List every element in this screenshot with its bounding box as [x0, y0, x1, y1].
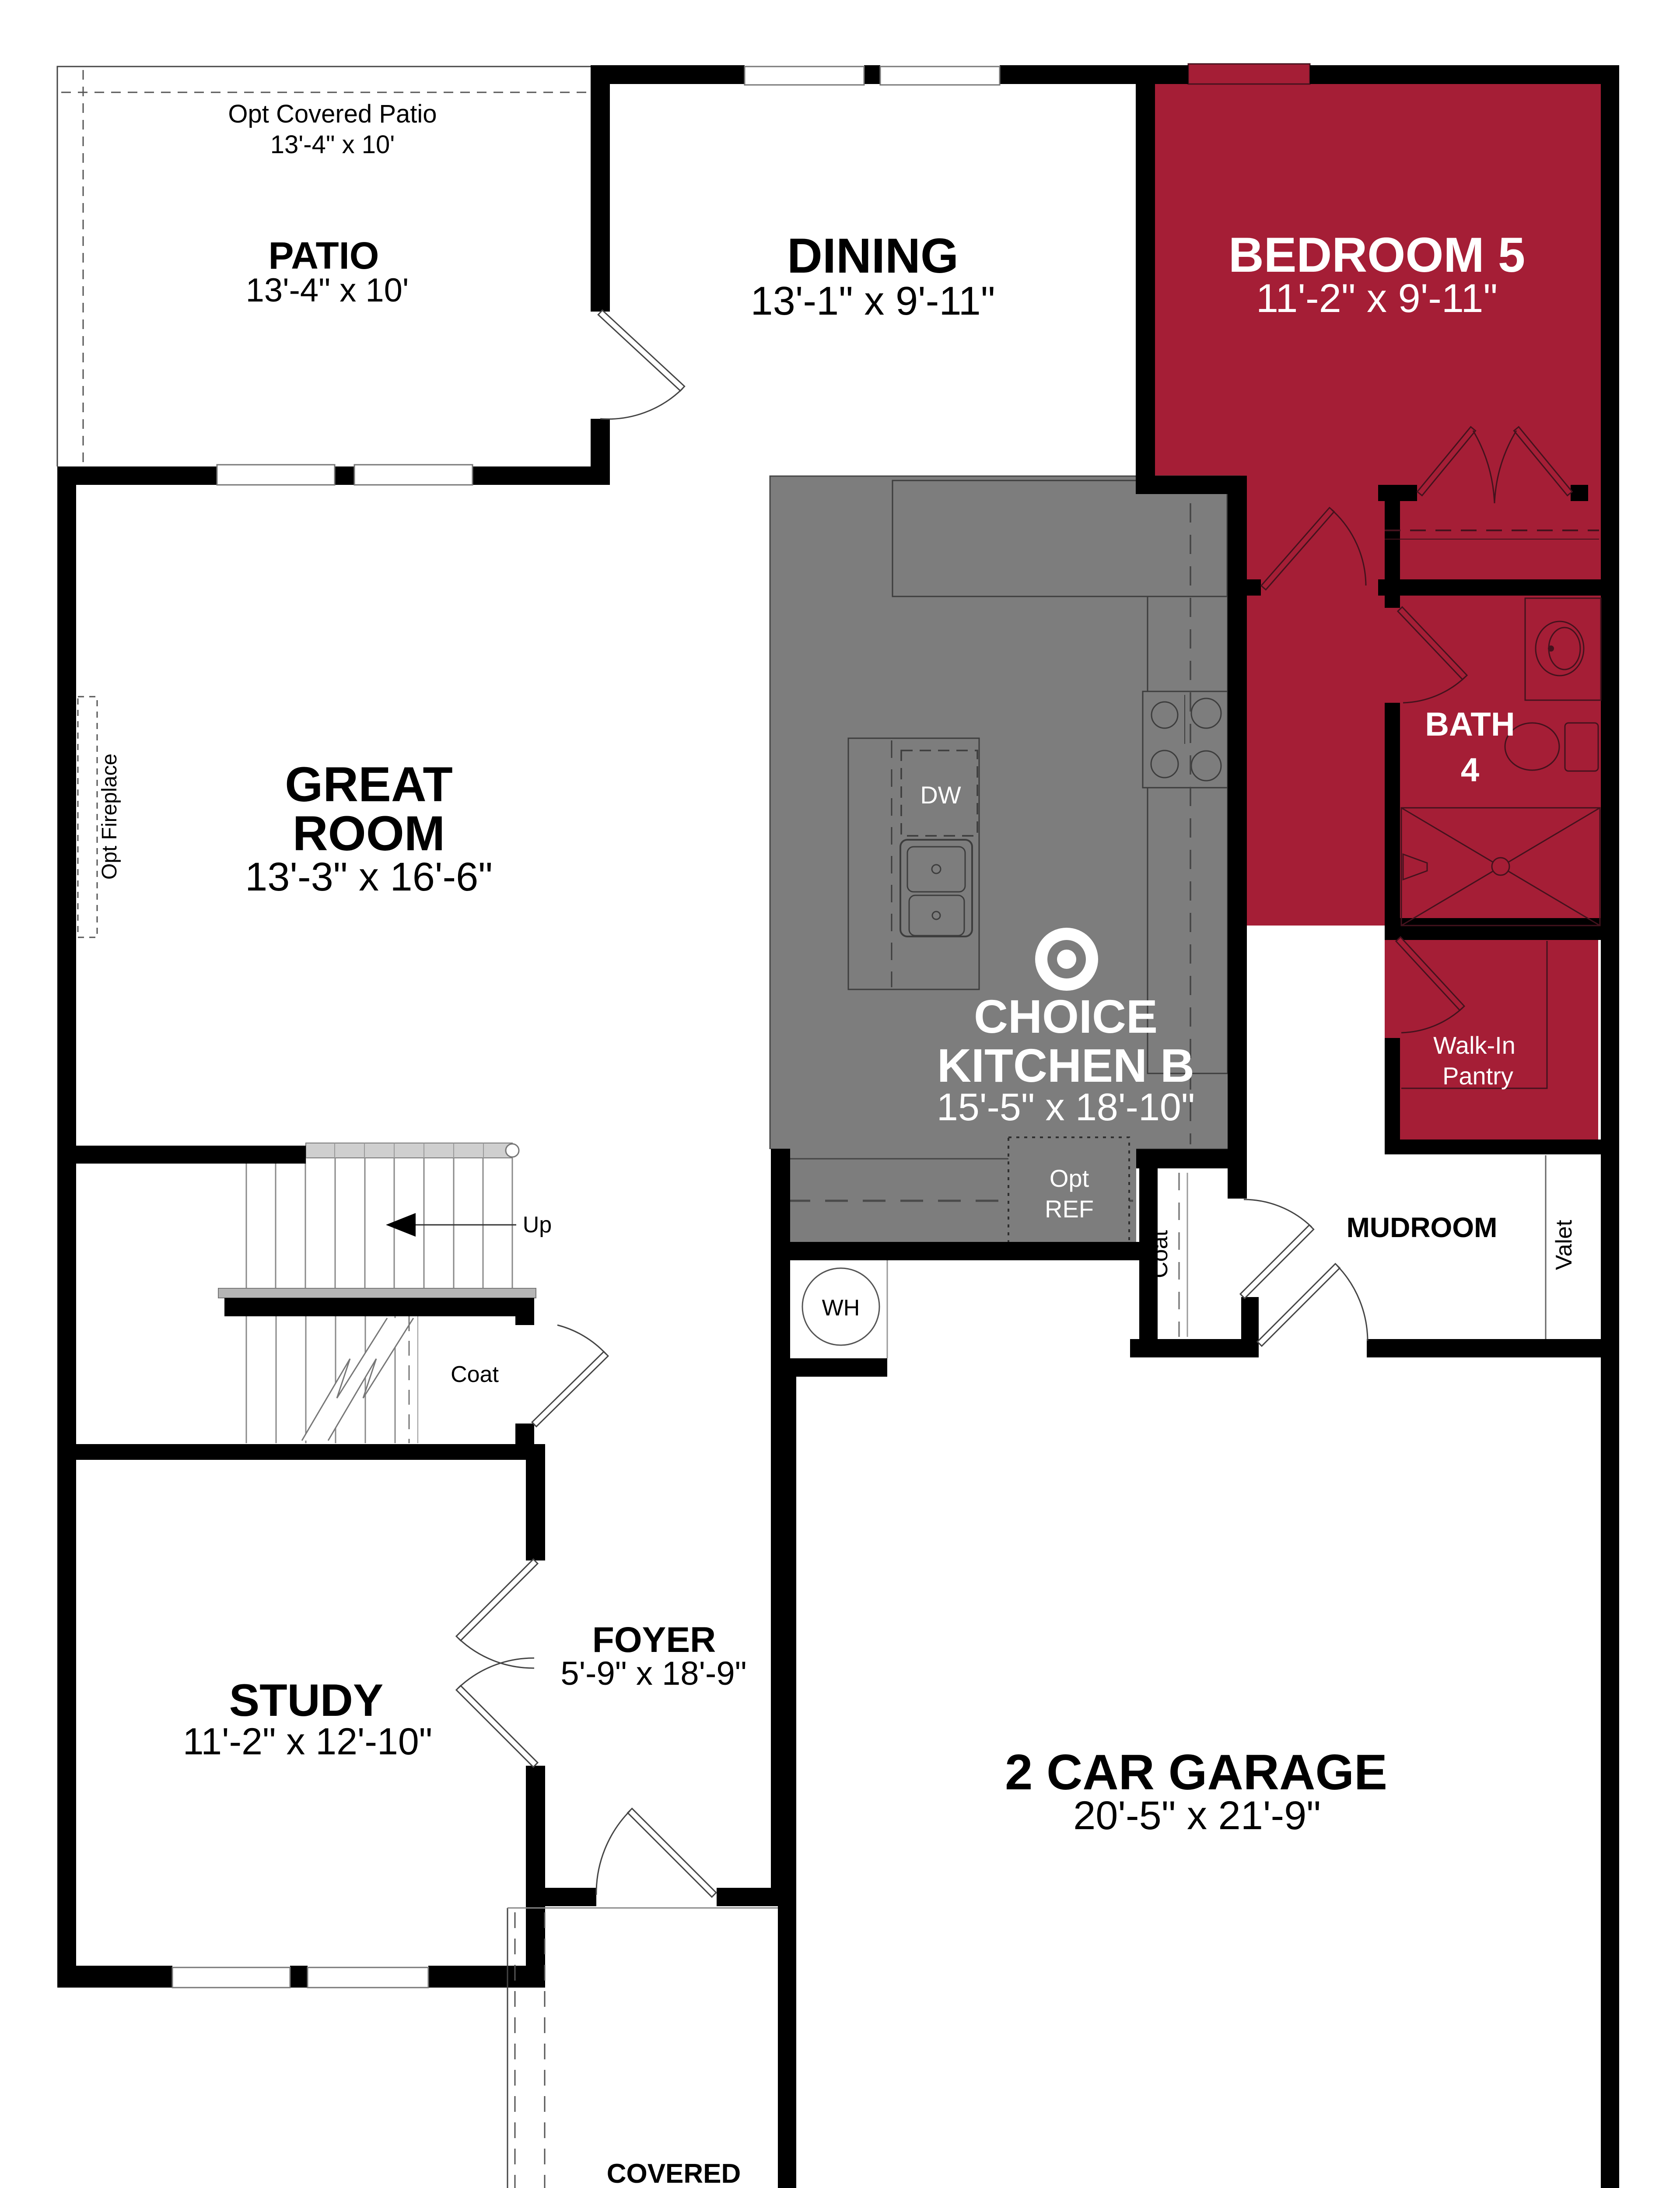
svg-text:REF: REF [1045, 1195, 1094, 1223]
svg-text:Coat: Coat [1147, 1230, 1172, 1278]
svg-text:13'-4" x 10': 13'-4" x 10' [270, 130, 395, 159]
svg-text:KITCHEN B: KITCHEN B [937, 1039, 1194, 1092]
svg-text:Pantry: Pantry [1442, 1062, 1513, 1090]
svg-text:BATH: BATH [1425, 706, 1515, 743]
svg-text:11'-2" x 9'-11": 11'-2" x 9'-11" [1256, 276, 1498, 321]
svg-text:2 CAR GARAGE: 2 CAR GARAGE [1005, 1745, 1387, 1800]
svg-text:4: 4 [1461, 751, 1479, 789]
svg-text:ROOM: ROOM [293, 806, 445, 861]
svg-text:Valet: Valet [1551, 1220, 1577, 1270]
svg-text:DINING: DINING [787, 228, 959, 283]
svg-text:Coat: Coat [451, 1362, 499, 1387]
svg-text:5'-9" x 18'-9": 5'-9" x 18'-9" [560, 1655, 746, 1692]
svg-text:WH: WH [822, 1295, 860, 1321]
svg-text:BEDROOM 5: BEDROOM 5 [1228, 228, 1525, 282]
svg-text:15'-5" x 18'-10": 15'-5" x 18'-10" [937, 1085, 1195, 1129]
svg-text:Opt Fireplace: Opt Fireplace [98, 754, 121, 880]
svg-text:STUDY: STUDY [229, 1675, 383, 1726]
svg-text:Opt Covered Patio: Opt Covered Patio [228, 100, 437, 128]
svg-text:13'-3" x 16'-6": 13'-3" x 16'-6" [245, 855, 493, 899]
svg-text:COVERED: COVERED [607, 2159, 741, 2188]
svg-text:11'-2" x 12'-10": 11'-2" x 12'-10" [183, 1721, 432, 1763]
svg-text:DW: DW [920, 781, 961, 809]
svg-text:13'-1" x 9'-11": 13'-1" x 9'-11" [750, 279, 995, 323]
svg-text:13'-4" x 10': 13'-4" x 10' [246, 272, 409, 309]
svg-text:GREAT: GREAT [285, 757, 453, 812]
svg-text:Walk-In: Walk-In [1433, 1031, 1515, 1059]
svg-text:PATIO: PATIO [269, 235, 379, 277]
svg-text:Opt: Opt [1050, 1164, 1089, 1192]
svg-text:FOYER: FOYER [592, 1620, 716, 1660]
svg-text:Up: Up [523, 1212, 552, 1238]
svg-text:CHOICE: CHOICE [974, 990, 1158, 1043]
svg-text:MUDROOM: MUDROOM [1347, 1212, 1498, 1243]
svg-text:20'-5" x 21'-9": 20'-5" x 21'-9" [1073, 1793, 1321, 1838]
